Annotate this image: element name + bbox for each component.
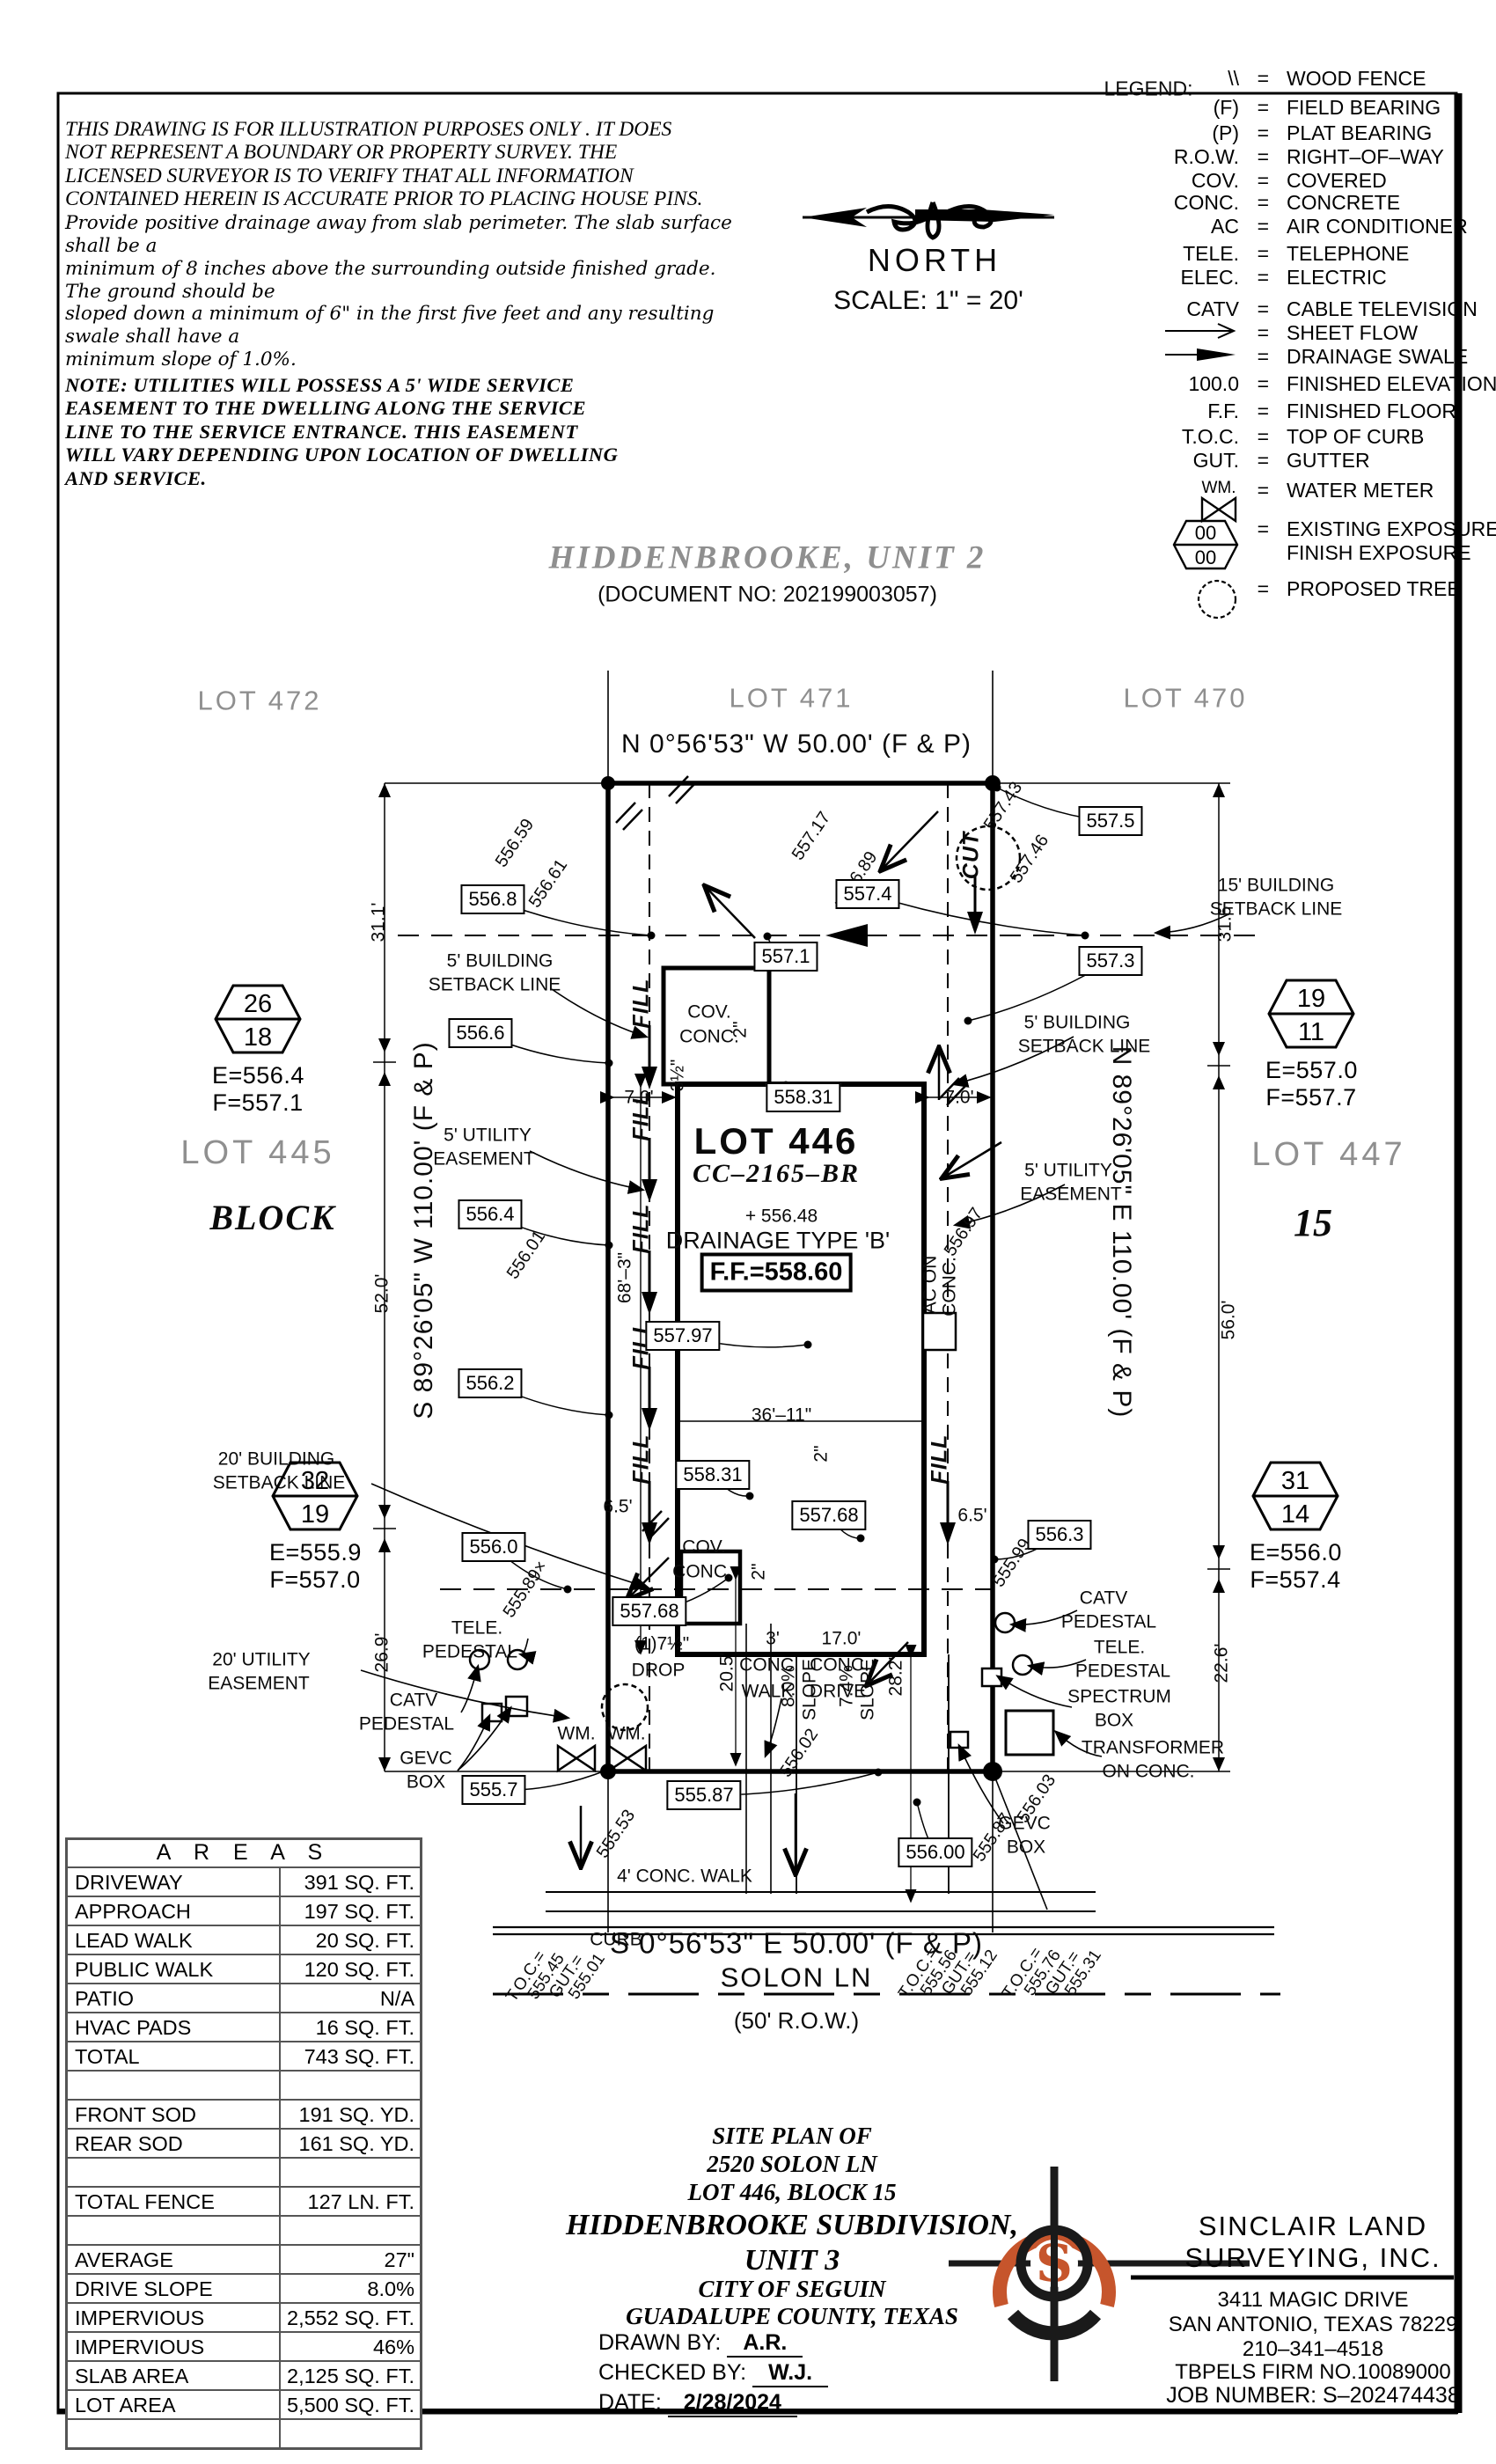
annotation-label: TELE. [451,1619,502,1638]
spot-elevation-box: 556.3 [1027,1520,1091,1550]
legend-row: COV.=COVERED [0,169,1496,194]
finished-elevation-box: 100.0 [1188,372,1239,396]
annotation-label: EASEMENT [433,1150,535,1169]
equals-sign: = [1258,191,1269,215]
title-block-line: 2520 SOLON LN [546,2151,1038,2178]
table-row [68,2217,420,2246]
area-label: FRONT SOD [68,2101,281,2128]
sheet-flow-arrow [1163,321,1239,345]
firm-name-2: SURVEYING, INC. [1144,2242,1482,2274]
spot-elevation-box: 555.7 [461,1775,525,1805]
legend-label: PLAT BEARING [1287,121,1432,145]
legend-label: GUTTER [1287,449,1370,473]
equals-sign: = [1258,215,1269,238]
dimension-label: 56.0' [1220,1301,1238,1340]
dimension-label: 20.5' [718,1653,737,1692]
annotation-label: CATV [1080,1589,1127,1608]
legend-label: TOP OF CURB [1287,425,1424,449]
annotation-label: PEDESTAL [1075,1662,1170,1681]
equals-sign: = [1258,297,1269,321]
annotation-label: CATV [390,1691,437,1710]
spot-elevation-box: 556.4 [458,1199,522,1229]
legend-row: (F)=FIELD BEARING [0,96,1496,121]
svg-text:26: 26 [244,990,272,1018]
spot-elevation-box: 556.8 [460,884,524,914]
street-row: (50' R.O.W.) [734,2009,859,2032]
street-name: SOLON LN [721,1964,873,1991]
area-value: 120 SQ. FT. [281,1955,420,1983]
equals-sign: = [1258,517,1269,541]
equals-sign: = [1258,96,1269,120]
area-label: HVAC PADS [68,2013,281,2041]
annotation-label: FILL [929,1434,951,1485]
table-row: AVERAGE EXPOSURE27" [68,2246,420,2275]
proposed-tree [1195,577,1239,627]
legend-row: R.O.W.=RIGHT–OF–WAY [0,145,1496,170]
table-row: TOTAL743 SQ. FT. [68,2042,420,2072]
finished-floor-label: F.F.=558.60 [700,1253,853,1293]
annotation-label: SPECTRUM [1067,1688,1171,1706]
legend-row: GUT.=GUTTER [0,449,1496,473]
table-row: DRIVEWAY391 SQ. FT. [68,1868,420,1897]
area-value: 20 SQ. FT. [281,1926,420,1954]
legend-row: CONC.=CONCRETE [0,191,1496,216]
equals-sign: = [1258,577,1269,601]
catv-abbr: CATV [1186,297,1239,321]
existing-exposure-value: E=555.9 [269,1539,361,1566]
gevc-box-icon [950,1732,968,1748]
spot-elevation-box: 556.0 [461,1532,525,1562]
area-value: 127 LN. FT. [281,2188,420,2215]
table-row [68,2159,420,2188]
legend-label: PROPOSED TREE [1287,577,1461,601]
dimension-label: 52.0' [373,1274,392,1314]
area-value [281,2217,420,2244]
drawn-by: DRAWN BY: A.R. [598,2330,1003,2358]
area-value [281,2420,420,2447]
areas-table: A R E A S DRIVEWAY391 SQ. FT.APPROACH197… [65,1837,422,2450]
legend-label: TELEPHONE [1287,242,1409,266]
area-label: AVERAGE EXPOSURE [68,2246,281,2273]
annotation-label: 3' [766,1630,780,1648]
spot-elevation-box: 556.6 [448,1018,512,1048]
legend-label: RIGHT–OF–WAY [1287,145,1444,169]
table-row: PUBLIC WALK120 SQ. FT. [68,1955,420,1984]
annotation-label: EASEMENT [1020,1185,1122,1204]
gevc-box-icon [506,1697,527,1716]
dimension-label: 7.0' [944,1089,973,1107]
legend-row: F.F.=FINISHED FLOOR [0,400,1496,424]
area-label: TOTAL [68,2042,281,2070]
lot-470-label: LOT 470 [1123,685,1247,712]
spot-elevation-box: 556.00 [898,1837,972,1867]
area-value: 197 SQ. FT. [281,1897,420,1925]
dimension-label: 7.0' [624,1089,653,1107]
spot-elevation-box: 557.4 [835,879,899,909]
annotation-label: SETBACK LINE [429,976,561,994]
table-row: IMPERVIOUS COVERAGE2,552 SQ. FT. [68,2304,420,2333]
legend-row: (P)=PLAT BEARING [0,121,1496,146]
legend-row: AC=AIR CONDITIONER [0,215,1496,239]
annotation-label: 5' BUILDING [447,952,554,971]
site-plan-sheet: S THIS DRAWING IS FOR ILLUSTRATION PURPO… [0,0,1496,2464]
table-row: REAR SOD161 SQ. YD. [68,2130,420,2159]
annotation-label: SETBACK LINE [1018,1038,1151,1056]
area-label: IMPERVIOUS COVERAGE [68,2304,281,2331]
annotation-label: PEDESTAL [422,1643,517,1661]
area-label: TOTAL FENCE [68,2188,281,2215]
annotation-label: CONC. [672,1563,732,1581]
annotation-label: AC ON [921,1256,940,1315]
svg-text:32: 32 [301,1467,329,1495]
title-block-line: CITY OF SEGUIN [546,2276,1038,2303]
document-number: (DOCUMENT NO: 202199003057) [598,584,937,606]
firm-job-number: JOB NUMBER: S–202474438 [1144,2383,1482,2409]
tele-pedestal-icon [1013,1655,1032,1675]
legend-label: WOOD FENCE [1287,67,1426,91]
equals-sign: = [1258,121,1269,145]
area-value: 191 SQ. YD. [281,2101,420,2128]
area-label [68,2420,281,2447]
annotation-label: CURB [590,1931,642,1949]
annotation-label: WM. [607,1725,645,1743]
svg-text:18: 18 [244,1023,272,1052]
annotation-label: GEVC [400,1749,452,1768]
spot-elevation-box: 557.68 [612,1596,686,1626]
annotation-label: 8.0% [780,1665,798,1707]
spot-elevation-box: 557.68 [791,1500,866,1530]
catv-pedestal-icon [995,1613,1015,1632]
subdivision-title: HIDDENBROOKE, UNIT 2 [549,542,986,575]
svg-text:19: 19 [1297,985,1325,1013]
wood-fence: \\ [1228,67,1239,91]
equals-sign: = [1258,479,1269,502]
area-value: 743 SQ. FT. [281,2042,420,2070]
equals-sign: = [1258,321,1269,345]
existing-exposure-value: E=556.0 [1250,1539,1341,1566]
equals-sign: = [1258,242,1269,266]
area-value: 27" [281,2246,420,2273]
annotation-label: 5' UTILITY [1024,1162,1112,1180]
annotation-label: WM. [557,1725,595,1743]
plan-code: CC–2165–BR [693,1161,860,1187]
transformer-icon [1006,1711,1053,1755]
svg-text:14: 14 [1281,1500,1309,1529]
ac-abbr: AC [1211,215,1239,238]
legend-row: CATV=CABLE TELEVISION [0,297,1496,322]
table-row: DRIVE SLOPE8.0% [68,2275,420,2304]
table-row [68,2420,420,2447]
legend-row: =SHEET FLOW [0,321,1496,346]
legend-row: T.O.C.=TOP OF CURB [0,425,1496,450]
svg-text:19: 19 [301,1500,329,1529]
area-label: DRIVE SLOPE [68,2275,281,2302]
title-block-line: SITE PLAN OF [546,2123,1038,2150]
toc-abbr: T.O.C. [1182,425,1239,449]
legend-label: AIR CONDITIONER [1287,215,1468,238]
exposure-marker: 1911E=557.0F=557.7 [1265,975,1357,1111]
area-value: 391 SQ. FT. [281,1868,420,1896]
area-value: N/A [281,1984,420,2012]
legend-row: TELE.=TELEPHONE [0,242,1496,267]
firm-tbpels: TBPELS FIRM NO.10089000 [1144,2360,1482,2385]
spot-elevation-box: 556.2 [458,1368,522,1398]
legend-label: EXISTING EXPOSUREFINISH EXPOSURE [1287,517,1496,565]
lot-472-label: LOT 472 [197,687,321,715]
legend-label: WATER METER [1287,479,1434,502]
drainage-type: DRAINAGE TYPE 'B' [666,1229,890,1253]
area-value: 8.0% [281,2275,420,2302]
lot-447-label: LOT 447 [1251,1138,1405,1171]
dimension-label: 31.1' [370,903,388,942]
cov-abbr: COV. [1192,169,1239,193]
spot-elevation-box: 557.1 [753,942,818,972]
north-bearing: N 0°56'53" W 50.00' (F & P) [621,731,972,758]
area-label: LOT AREA [68,2391,281,2418]
equals-sign: = [1258,67,1269,91]
area-value: 16 SQ. FT. [281,2013,420,2041]
drainage-swale-arrow [1163,345,1239,369]
equals-sign: = [1258,169,1269,193]
annotation-label: 5' BUILDING [1024,1014,1131,1032]
field-bearing: (F) [1214,96,1239,120]
area-value: 5,500 SQ. FT. [281,2391,420,2418]
annotation-label: FILL [631,1434,653,1485]
spot-elevation: + 556.48 [745,1207,818,1226]
annotation-label: 17.0' [822,1630,862,1648]
area-label: IMPERVIOUS COVERAGE % [68,2333,281,2360]
annotation-label: PEDESTAL [359,1715,454,1734]
legend-label: FIELD BEARING [1287,96,1441,120]
table-row: PATION/A [68,1984,420,2013]
table-row: TOTAL FENCE127 LN. FT. [68,2188,420,2217]
spot-elevation-box: 558.31 [675,1460,750,1490]
dimension-label: 2" [750,1563,768,1580]
equals-sign: = [1258,372,1269,396]
legend-label: ELECTRIC [1287,266,1387,290]
gut-abbr: GUT. [1193,449,1239,473]
annotation-label: TELE. [1094,1639,1145,1657]
exposure-marker: 3114E=556.0F=557.4 [1250,1457,1341,1594]
annotation-label: 7.4% [838,1665,856,1707]
east-bearing: N 89°26'05" E 110.00' (F & P) [1108,1046,1134,1419]
annotation-label: EASEMENT [208,1675,310,1693]
annotation-label: SLOPE [801,1659,819,1720]
annotation-label: BOX [407,1773,445,1792]
table-row: IMPERVIOUS COVERAGE %46% [68,2333,420,2362]
elec-abbr: ELEC. [1181,266,1239,290]
equals-sign: = [1258,266,1269,290]
dimension-label: 6.5' [957,1507,986,1525]
ac-pad-icon [923,1313,956,1350]
exposure-marker: 3219E=555.9F=557.0 [269,1457,361,1594]
table-row [68,2072,420,2101]
legend-label: SHEET FLOW [1287,321,1418,345]
title-block-line: LOT 446, BLOCK 15 [546,2179,1038,2206]
table-row: APPROACH197 SQ. FT. [68,1897,420,1926]
legend-label: CONCRETE [1287,191,1400,215]
legend-row: 100.0=FINISHED ELEVATION [0,372,1496,397]
tele-abbr: TELE. [1183,242,1239,266]
dimension-label: 36'–11" [752,1406,811,1425]
lot-471-label: LOT 471 [729,685,853,712]
table-row: LOT AREA5,500 SQ. FT. [68,2391,420,2420]
ff-abbr: F.F. [1207,400,1239,423]
area-value: 46% [281,2333,420,2360]
legend-row: ELEC.=ELECTRIC [0,266,1496,290]
block-number: 15 [1294,1204,1332,1243]
area-label [68,2159,281,2186]
equals-sign: = [1258,345,1269,369]
equals-sign: = [1258,400,1269,423]
firm-address-2: SAN ANTONIO, TEXAS 78229 [1144,2313,1482,2337]
annotation-label: BOX [1095,1712,1133,1730]
dimension-label: 68'–3" [616,1252,634,1303]
west-bearing: S 89°26'05" W 110.00' (F & P) [411,1041,437,1419]
annotation-label: BOX [1007,1838,1045,1857]
dimension-label: 2" [731,1021,750,1038]
spot-elevation-box: 558.31 [766,1082,840,1112]
area-label: SLAB AREA [68,2362,281,2389]
lot-446-label: LOT 446 [694,1123,859,1160]
svg-text:11: 11 [1298,1018,1324,1046]
spot-elevation-box: 557.3 [1078,946,1142,976]
area-value [281,2072,420,2099]
dimension-label: 2" [812,1445,831,1462]
annotation-label: 20' UTILITY [212,1651,310,1669]
area-value: 2,125 SQ. FT. [281,2362,420,2389]
firm-name-1: SINCLAIR LAND [1144,2211,1482,2242]
title-block-line: HIDDENBROOKE SUBDIVISION, [546,2209,1038,2242]
legend-label: CABLE TELEVISION [1287,297,1478,321]
finish-exposure-value: F=557.0 [269,1566,361,1594]
area-value: 2,552 SQ. FT. [281,2304,420,2331]
table-row: HVAC PADS16 SQ. FT. [68,2013,420,2042]
firm-phone: 210–341–4518 [1144,2337,1482,2362]
finish-exposure-value: F=557.7 [1265,1084,1357,1111]
spot-elevation-box: 557.97 [645,1321,720,1351]
title-block-line: UNIT 3 [546,2244,1038,2277]
legend-row: \\=WOOD FENCE [0,67,1496,92]
table-row: LEAD WALK20 SQ. FT. [68,1926,420,1955]
legend-row: =DRAINAGE SWALE [0,345,1496,370]
annotation-label: CUT [961,832,983,879]
annotation-label: TRANSFORMER [1082,1739,1224,1757]
area-label: PUBLIC WALK [68,1955,281,1983]
conc-abbr: CONC. [1174,191,1239,215]
svg-text:00: 00 [1195,546,1216,568]
equals-sign: = [1258,425,1269,449]
area-label: APPROACH [68,1897,281,1925]
row-abbr: R.O.W. [1174,145,1239,169]
title-block-line: GUADALUPE COUNTY, TEXAS [546,2303,1038,2330]
annotation-label: PEDESTAL [1061,1613,1156,1632]
drainage-swale-arrow [825,924,868,947]
annotation-label: SLOPE [859,1659,877,1720]
finish-exposure-value: F=557.4 [1250,1566,1341,1594]
area-label: REAR SOD [68,2130,281,2157]
existing-exposure-value: E=557.0 [1265,1057,1357,1084]
annotation-label: 5' UTILITY [444,1126,532,1145]
area-value [281,2159,420,2186]
block-word: BLOCK [209,1200,335,1236]
svg-text:31: 31 [1281,1467,1309,1495]
annotation-label: 15' BUILDING [1218,876,1334,895]
dimension-label: 31.5' [1216,903,1235,942]
legend-row: 0000=EXISTING EXPOSUREFINISH EXPOSURE [0,517,1496,542]
legend-label: COVERED [1287,169,1387,193]
area-label: PATIO [68,1984,281,2012]
area-label [68,2072,281,2099]
legend-label: FINISHED ELEVATION [1287,372,1496,396]
legend-label: FINISHED FLOOR [1287,400,1456,423]
annotation-label: 4' CONC. WALK [617,1867,752,1886]
spot-elevation-box: 555.87 [666,1780,741,1810]
checked-by: CHECKED BY: W.J. [598,2360,1003,2387]
dimension-label: 22.6' [1213,1644,1231,1683]
existing-exposure-value: E=556.4 [212,1062,304,1089]
finish-exposure-value: F=557.1 [212,1089,304,1117]
annotation-label: COV. [682,1538,725,1557]
areas-table-title: A R E A S [68,1840,420,1868]
area-label [68,2217,281,2244]
firm-address-1: 3411 MAGIC DRIVE [1144,2288,1482,2313]
annotation-label: ON CONC. [1103,1763,1195,1781]
date-field: DATE: 2/28/2024 [598,2390,1003,2417]
area-label: LEAD WALK [68,1926,281,1954]
equals-sign: = [1258,145,1269,169]
dimension-label: 26.9' [373,1633,392,1673]
dimension-label: 6.5' [603,1498,632,1516]
annotation-label: FILL [631,979,653,1029]
dimension-label: 3½" [669,1060,687,1092]
legend-row: WM.=WATER METER [0,479,1496,503]
legend-label: DRAINAGE SWALE [1287,345,1468,369]
dimension-label: 28.2' [887,1657,906,1697]
equals-sign: = [1258,449,1269,473]
annotation-label: DROP [632,1661,686,1680]
annotation-label: FILL [631,1204,653,1254]
table-row: SLAB AREA2,125 SQ. FT. [68,2362,420,2391]
lot-445-label: LOT 445 [180,1136,334,1170]
plat-bearing: (P) [1212,121,1239,145]
area-value: 161 SQ. YD. [281,2130,420,2157]
annotation-label: (1)7½" [634,1635,689,1654]
annotation-label: CONC. [941,1257,959,1316]
table-row: FRONT SOD191 SQ. YD. [68,2101,420,2130]
exposure-hex: 0000 [1172,517,1239,577]
svg-text:00: 00 [1195,522,1216,544]
exposure-marker: 2618E=556.4F=557.1 [212,980,304,1117]
area-label: DRIVEWAY [68,1868,281,1896]
spot-elevation-box: 557.5 [1078,806,1142,836]
annotation-label: COV. [687,1003,730,1022]
